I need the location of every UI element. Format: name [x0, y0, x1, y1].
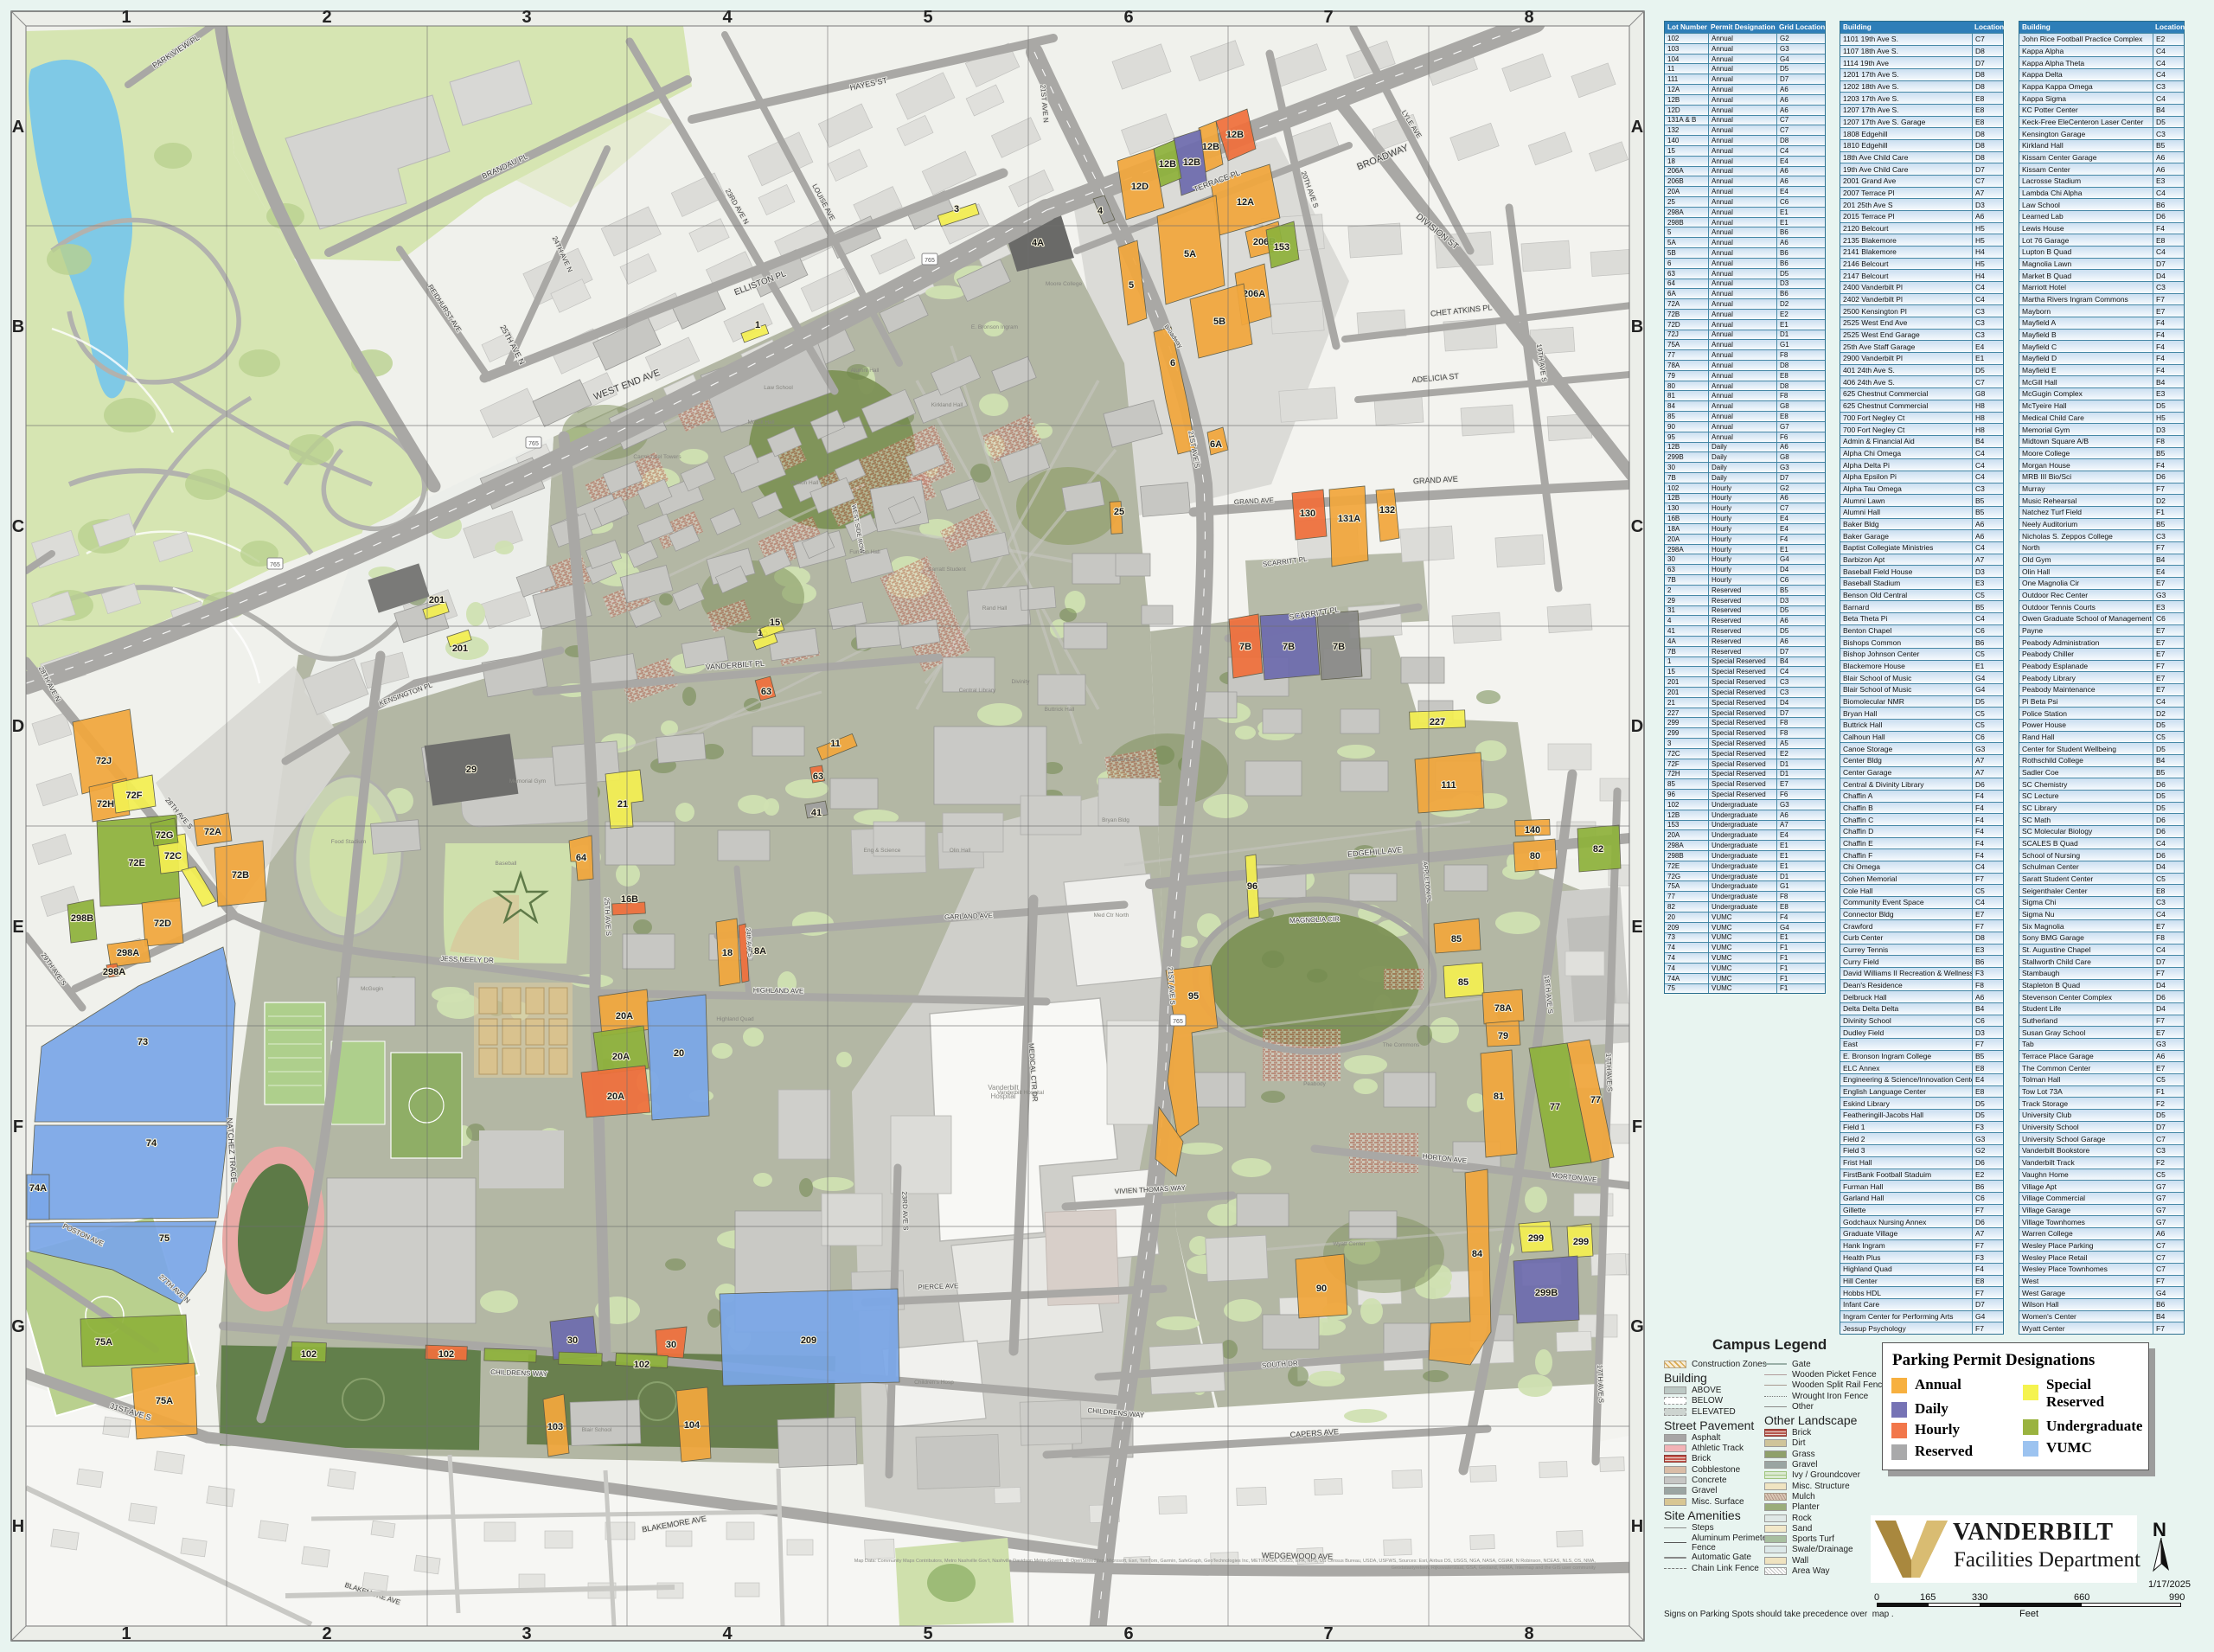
svg-text:102: 102: [438, 1349, 454, 1360]
svg-text:82: 82: [1593, 844, 1603, 855]
svg-text:96: 96: [1247, 881, 1257, 892]
svg-text:765: 765: [270, 562, 280, 568]
svg-text:HIGHLAND AVE: HIGHLAND AVE: [753, 986, 804, 995]
svg-text:72E: 72E: [128, 858, 145, 868]
svg-text:209: 209: [801, 1335, 816, 1346]
svg-text:72C: 72C: [164, 851, 182, 861]
svg-text:Eng & Science: Eng & Science: [864, 848, 901, 854]
svg-text:5A: 5A: [1184, 249, 1196, 259]
svg-text:12B: 12B: [1159, 159, 1176, 170]
svg-text:4: 4: [722, 1624, 733, 1643]
svg-text:Buttrick Hall: Buttrick Hall: [1045, 707, 1075, 713]
svg-text:75: 75: [159, 1233, 170, 1244]
svg-text:8: 8: [1524, 8, 1533, 27]
svg-text:64: 64: [576, 853, 587, 863]
svg-text:85: 85: [1458, 977, 1469, 988]
svg-text:206A: 206A: [1243, 289, 1265, 299]
svg-text:84: 84: [1472, 1249, 1483, 1259]
svg-text:C: C: [12, 517, 24, 536]
svg-text:Wyatt Center: Wyatt Center: [1333, 1241, 1366, 1247]
svg-text:130: 130: [1300, 509, 1315, 519]
svg-text:17TH AVE S: 17TH AVE S: [1604, 1053, 1614, 1092]
svg-text:7: 7: [1323, 8, 1333, 27]
svg-text:72H: 72H: [97, 799, 114, 810]
svg-text:Children's Hosp: Children's Hosp: [914, 1380, 954, 1386]
svg-text:73: 73: [138, 1037, 148, 1047]
svg-text:153: 153: [1274, 242, 1289, 253]
svg-text:G: G: [11, 1317, 25, 1336]
svg-text:201: 201: [452, 644, 468, 654]
svg-text:Map Data: Community Maps Contr: Map Data: Community Maps Contributors, M…: [854, 1558, 1597, 1564]
svg-text:4: 4: [1097, 206, 1104, 216]
svg-text:Peabody: Peabody: [1303, 1081, 1326, 1087]
svg-text:Bryan Bldg: Bryan Bldg: [1102, 817, 1129, 823]
svg-text:85: 85: [1451, 934, 1462, 944]
svg-text:72F: 72F: [126, 791, 143, 801]
svg-text:21: 21: [617, 799, 628, 810]
svg-text:29: 29: [466, 765, 477, 775]
svg-text:Food Stadium: Food Stadium: [331, 839, 366, 845]
svg-text:McGill Hall: McGill Hall: [747, 419, 775, 426]
svg-text:B: B: [12, 317, 24, 336]
svg-text:63: 63: [761, 687, 771, 697]
svg-text:63: 63: [813, 772, 823, 782]
svg-text:A: A: [12, 118, 24, 137]
svg-text:30: 30: [666, 1340, 676, 1350]
svg-text:74: 74: [146, 1138, 157, 1149]
svg-text:The Commons: The Commons: [1383, 1042, 1420, 1048]
svg-text:Furman Hall: Furman Hall: [849, 549, 880, 555]
svg-text:81: 81: [1494, 1092, 1504, 1102]
svg-text:E: E: [1631, 918, 1642, 937]
svg-text:298A: 298A: [103, 967, 125, 977]
svg-text:201: 201: [429, 595, 445, 605]
svg-text:6: 6: [1170, 358, 1175, 368]
svg-text:Moore College: Moore College: [1046, 281, 1083, 287]
svg-text:12A: 12A: [1237, 197, 1254, 208]
svg-text:8: 8: [1524, 1624, 1533, 1643]
svg-text:765: 765: [1173, 1019, 1183, 1025]
svg-text:7B: 7B: [1333, 642, 1345, 652]
svg-text:41: 41: [811, 808, 822, 818]
svg-text:Highland Quad: Highland Quad: [716, 1016, 754, 1022]
svg-text:12B: 12B: [1226, 130, 1244, 140]
svg-text:299B: 299B: [1535, 1288, 1558, 1298]
svg-text:298A: 298A: [117, 948, 139, 958]
svg-text:7: 7: [1323, 1624, 1333, 1643]
svg-text:12D: 12D: [1131, 182, 1149, 192]
svg-text:132: 132: [1379, 505, 1395, 515]
svg-text:6A: 6A: [1210, 439, 1222, 450]
svg-text:102: 102: [301, 1349, 317, 1360]
svg-text:McGugin: McGugin: [361, 986, 383, 992]
svg-text:2: 2: [322, 8, 331, 27]
svg-text:D: D: [1631, 717, 1643, 736]
svg-text:Law School: Law School: [764, 385, 793, 391]
svg-text:Memorial Gym: Memorial Gym: [509, 778, 546, 784]
svg-text:111: 111: [1441, 780, 1456, 791]
svg-text:G: G: [1630, 1317, 1644, 1336]
svg-text:30: 30: [567, 1335, 578, 1346]
svg-text:227: 227: [1430, 717, 1445, 727]
svg-text:77: 77: [1590, 1095, 1601, 1105]
svg-text:A: A: [1631, 118, 1643, 137]
svg-text:78A: 78A: [1494, 1003, 1512, 1014]
svg-text:17TH AVE S: 17TH AVE S: [1596, 1365, 1605, 1404]
svg-text:72B: 72B: [232, 870, 249, 880]
svg-text:H: H: [1631, 1517, 1643, 1536]
svg-text:79: 79: [1498, 1031, 1508, 1041]
svg-text:74A: 74A: [29, 1183, 47, 1194]
svg-text:75A: 75A: [156, 1396, 173, 1406]
svg-text:765: 765: [528, 441, 539, 447]
svg-text:Carmichael Towers: Carmichael Towers: [633, 454, 681, 460]
svg-text:298B: 298B: [71, 913, 93, 924]
svg-text:D: D: [12, 717, 24, 736]
svg-text:H: H: [12, 1517, 24, 1536]
svg-text:12B: 12B: [1202, 142, 1219, 152]
svg-text:Sarratt Student: Sarratt Student: [928, 567, 966, 573]
svg-text:18: 18: [722, 948, 733, 958]
svg-text:77: 77: [1550, 1102, 1560, 1112]
svg-text:7B: 7B: [1283, 642, 1295, 652]
svg-text:103: 103: [547, 1422, 563, 1432]
svg-text:1: 1: [121, 1624, 131, 1643]
svg-text:C: C: [1631, 517, 1643, 536]
svg-text:Alumni Hall: Alumni Hall: [851, 368, 880, 374]
svg-text:12B: 12B: [1183, 157, 1200, 168]
svg-text:299: 299: [1528, 1233, 1544, 1244]
svg-text:F: F: [1632, 1117, 1642, 1137]
svg-text:Central Library: Central Library: [959, 688, 996, 694]
svg-text:5: 5: [923, 8, 932, 27]
svg-text:11: 11: [830, 739, 841, 749]
svg-text:299: 299: [1573, 1237, 1589, 1247]
svg-text:Geodatastyrelsen, Rijkswaterst: Geodatastyrelsen, Rijkswaterstaat, GSA, …: [1392, 1566, 1597, 1571]
svg-text:4A: 4A: [1032, 238, 1044, 248]
svg-text:5B: 5B: [1213, 317, 1225, 327]
svg-text:75A: 75A: [95, 1337, 112, 1348]
svg-text:7B: 7B: [1239, 642, 1251, 652]
svg-text:Student Life: Student Life: [1110, 757, 1140, 763]
svg-text:Med Ctr North: Med Ctr North: [1094, 912, 1129, 919]
svg-text:72G: 72G: [156, 830, 174, 841]
svg-text:5: 5: [923, 1624, 932, 1643]
svg-text:72D: 72D: [154, 919, 171, 929]
svg-text:Wilson Hall: Wilson Hall: [790, 480, 819, 486]
svg-text:765: 765: [925, 258, 935, 264]
svg-text:Olin Hall: Olin Hall: [950, 848, 971, 854]
svg-text:Blair School: Blair School: [582, 1427, 612, 1433]
svg-text:5: 5: [1129, 280, 1134, 291]
svg-text:Divinity: Divinity: [1012, 679, 1031, 685]
svg-text:2: 2: [322, 1624, 331, 1643]
svg-text:140: 140: [1525, 825, 1540, 836]
svg-text:PIERCE AVE: PIERCE AVE: [918, 1282, 958, 1291]
svg-text:95: 95: [1188, 991, 1199, 1002]
svg-text:4: 4: [722, 8, 733, 27]
svg-text:6: 6: [1123, 8, 1133, 27]
svg-text:104: 104: [684, 1420, 701, 1431]
svg-text:80: 80: [1530, 851, 1540, 861]
svg-text:Vanderbilt Hospital: Vanderbilt Hospital: [997, 1090, 1045, 1096]
svg-text:3: 3: [522, 1624, 531, 1643]
svg-text:25: 25: [1114, 507, 1124, 517]
svg-text:1: 1: [755, 320, 760, 330]
svg-text:Baseball: Baseball: [496, 861, 517, 867]
svg-text:1: 1: [121, 8, 131, 27]
svg-text:B: B: [1631, 317, 1643, 336]
svg-text:3: 3: [522, 8, 531, 27]
svg-text:3: 3: [954, 204, 959, 215]
svg-text:F: F: [13, 1117, 23, 1137]
svg-text:23RD AVE S: 23RD AVE S: [900, 1191, 910, 1231]
svg-text:131A: 131A: [1338, 514, 1360, 524]
svg-text:16B: 16B: [621, 894, 638, 905]
svg-text:102: 102: [634, 1360, 649, 1370]
svg-text:20: 20: [674, 1048, 684, 1059]
svg-text:6: 6: [1123, 1624, 1133, 1643]
svg-text:E. Bronson Ingram: E. Bronson Ingram: [971, 324, 1018, 330]
svg-text:72J: 72J: [96, 756, 112, 766]
svg-text:72A: 72A: [204, 827, 221, 837]
svg-text:Rand Hall: Rand Hall: [982, 605, 1008, 611]
svg-text:Kirkland Hall: Kirkland Hall: [931, 402, 963, 408]
svg-text:E: E: [12, 918, 23, 937]
svg-text:20A: 20A: [616, 1011, 633, 1021]
svg-text:20A: 20A: [607, 1092, 624, 1102]
svg-text:90: 90: [1316, 1284, 1327, 1294]
